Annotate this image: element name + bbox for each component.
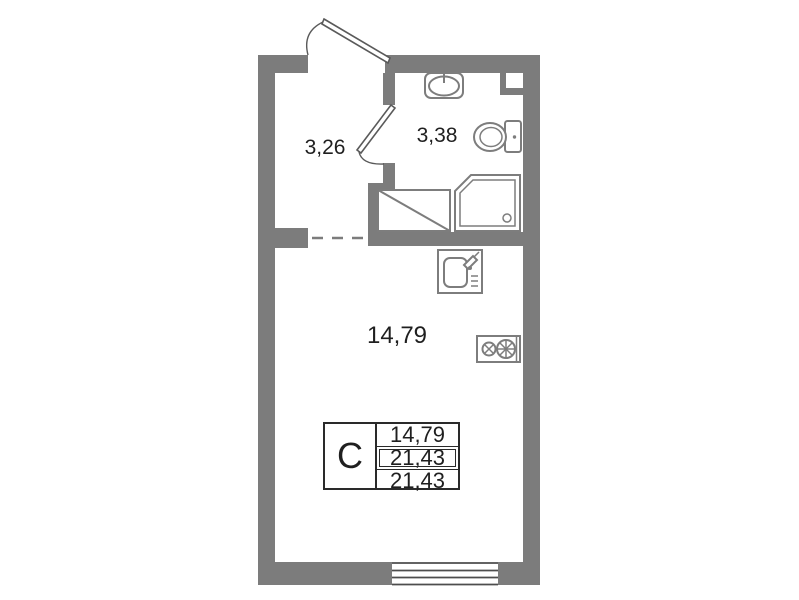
kitchen-sink-icon: [438, 250, 482, 293]
entrance-door-icon: [307, 19, 390, 63]
legend-overall-area-cell: 21,43: [377, 469, 458, 492]
legend-living-area-cell: 14,79: [377, 424, 458, 447]
top-wall-right: [385, 55, 540, 73]
bottom-wall-corner-block: [498, 562, 540, 585]
entrance-door-leaf: [322, 19, 390, 63]
right-wall: [523, 55, 540, 585]
bathroom-bottom-wall: [368, 232, 540, 246]
stove-icon: [477, 336, 520, 362]
top-wall-left-stub: [258, 55, 308, 73]
toilet-icon: [474, 121, 521, 152]
vent-shaft-icon: [506, 73, 523, 88]
washing-machine-icon: [378, 190, 450, 231]
bathroom-door-icon: [357, 105, 395, 164]
floor-plan: 3,26 3,38 14,79 С 14,79 21,43 21,43: [0, 0, 799, 600]
window-icon: [392, 563, 498, 585]
hallway-area-label: 3,26: [293, 136, 357, 160]
unit-type-cell: С: [325, 424, 377, 488]
bathroom-area-label: 3,38: [405, 124, 469, 148]
bathroom-wall-above-door: [383, 73, 395, 105]
entrance-door-swing-arc: [307, 22, 323, 55]
bathroom-door-leaf: [357, 105, 395, 153]
living-room-area-label: 14,79: [352, 322, 442, 350]
floor-plan-drawing: [0, 0, 799, 600]
unit-legend-table: С 14,79 21,43 21,43: [323, 422, 460, 490]
bathroom-door-swing-arc: [359, 152, 384, 164]
hallway-bottom-stub: [258, 228, 308, 248]
legend-total-area-cell: 21,43: [377, 447, 458, 469]
unit-legend-values: 14,79 21,43 21,43: [377, 424, 458, 488]
bottom-wall-left: [258, 562, 392, 585]
washbasin-icon: [425, 73, 463, 98]
shower-icon: [455, 175, 520, 231]
left-wall: [258, 55, 275, 585]
